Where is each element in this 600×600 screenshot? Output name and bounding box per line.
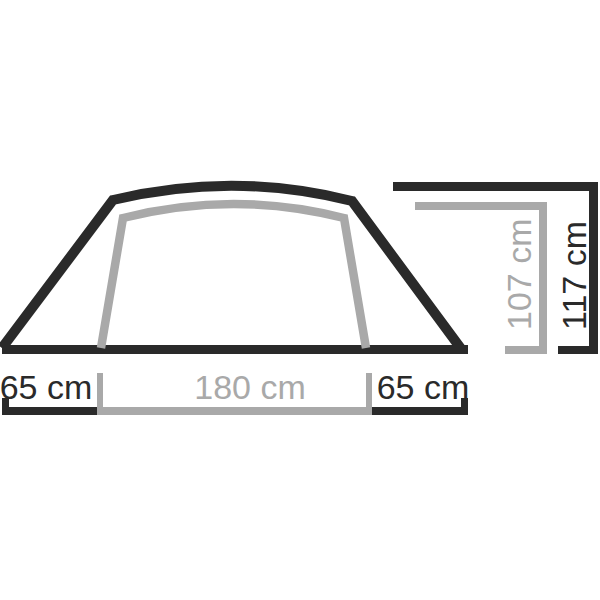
dim-bracket-outer-height-foot xyxy=(558,346,598,354)
tent-outer-outline xyxy=(2,186,462,350)
diagram-svg: 65 cm 180 cm 65 cm 107 cm 117 cm xyxy=(0,0,600,600)
dim-line-inner-width xyxy=(100,407,367,415)
label-inner-height: 107 cm xyxy=(500,219,538,331)
dim-bracket-inner-height-foot xyxy=(505,346,547,354)
dim-bracket-inner-height-vertical xyxy=(539,202,547,354)
dim-bracket-outer-height-top xyxy=(393,182,598,191)
label-left-width: 65 cm xyxy=(0,368,92,406)
dim-line-right-width xyxy=(372,407,468,415)
label-right-width: 65 cm xyxy=(377,368,470,406)
dim-line-left-width xyxy=(2,407,98,415)
label-inner-width: 180 cm xyxy=(194,368,306,406)
tent-dimension-diagram: 65 cm 180 cm 65 cm 107 cm 117 cm xyxy=(0,0,600,600)
dim-tick-inner-right xyxy=(366,373,372,415)
tent-floor-line xyxy=(2,345,468,354)
label-outer-height: 117 cm xyxy=(555,221,593,330)
dim-bracket-inner-height-top xyxy=(415,202,547,210)
tent-inner-outline xyxy=(101,204,366,348)
